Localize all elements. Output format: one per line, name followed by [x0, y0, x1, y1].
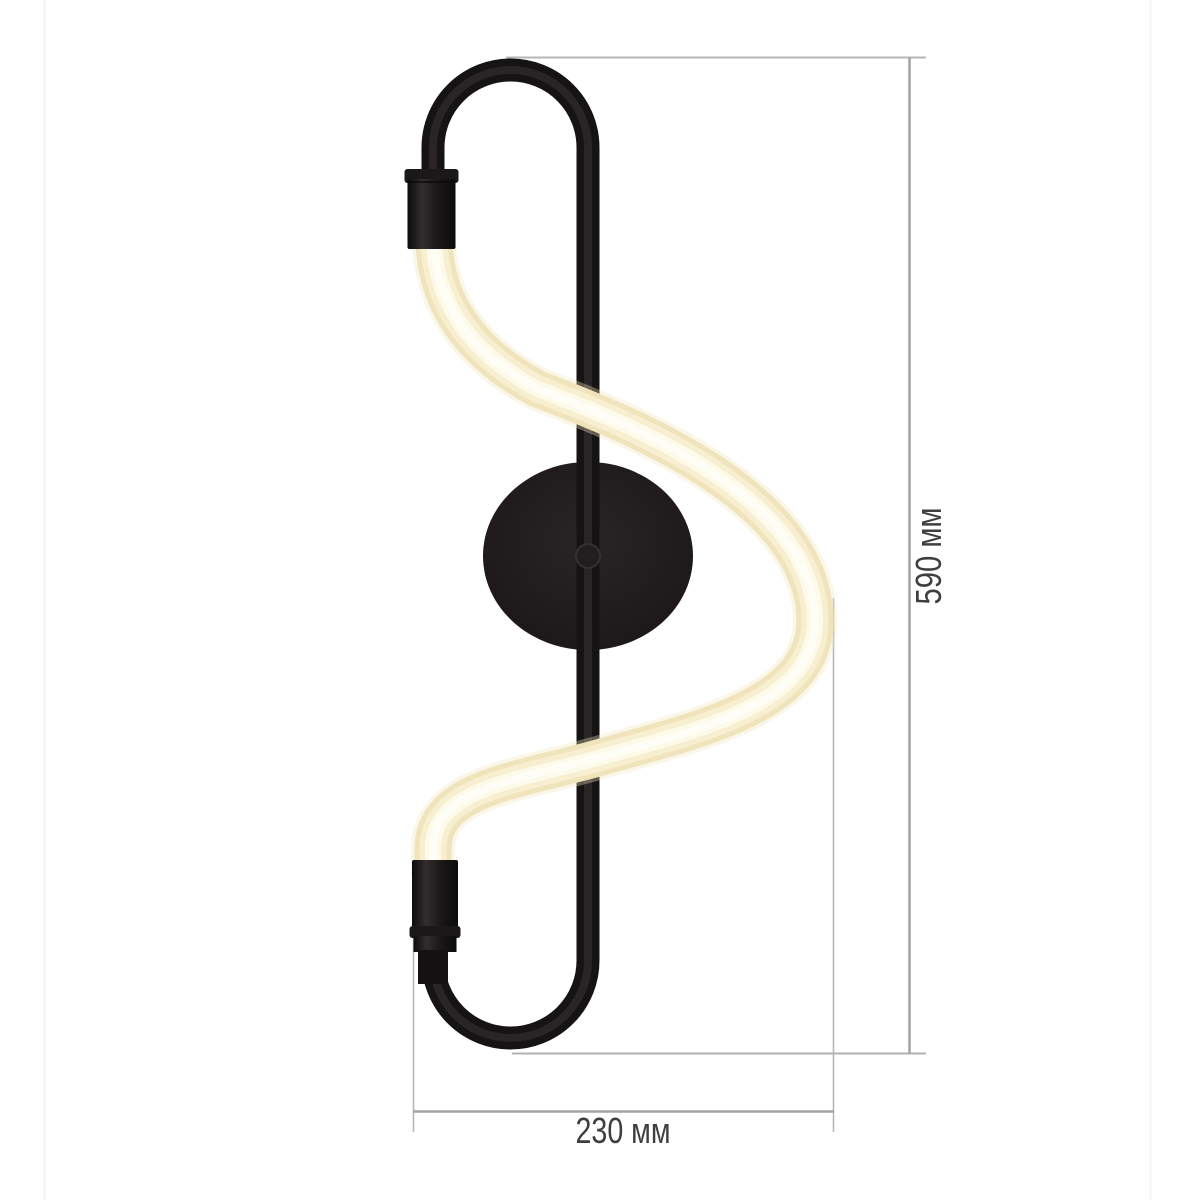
dimension-annotations: 590 мм 230 мм — [413, 58, 949, 1152]
height-label: 590 мм — [908, 508, 949, 605]
top-socket-groove — [408, 181, 456, 183]
width-label: 230 мм — [576, 1110, 671, 1151]
wall-sconce — [405, 70, 816, 1038]
bottom-socket-body — [412, 860, 458, 930]
wall-sconce-diagram: 590 мм 230 мм — [0, 0, 1200, 1200]
bottom-socket-lower — [414, 936, 457, 952]
top-socket — [405, 169, 459, 249]
product-dimension-image: 590 мм 230 мм — [0, 0, 1200, 1200]
mounting-screw — [576, 544, 600, 568]
bottom-socket — [410, 860, 461, 984]
top-socket-body — [408, 179, 456, 249]
